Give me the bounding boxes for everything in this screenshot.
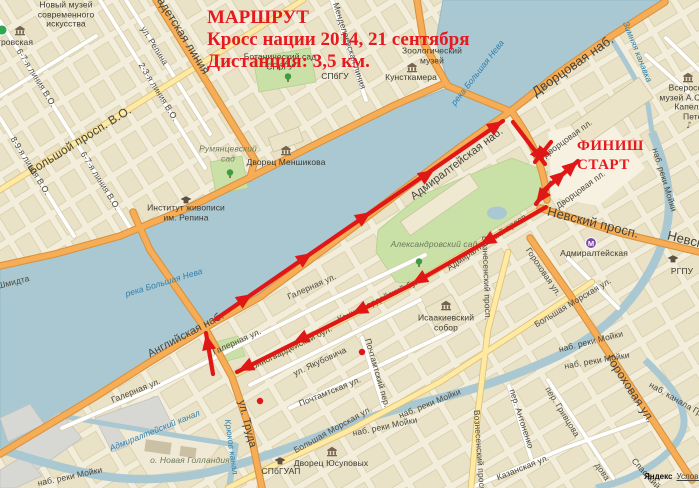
route-title-line2: Кросс нации 2014, 21 сентября [207,29,470,51]
garden-pond [487,207,507,220]
route-title-line3: Дистанция: 3,5 км. [207,51,470,73]
metro-icon [586,238,597,249]
route-title-line1: МАРШРУТ [207,7,470,29]
terms-link[interactable]: Условия [676,472,699,481]
start-label: СТАРТ [577,157,630,174]
base-map: М ♪ [0,0,699,488]
metro-icon-green [0,25,7,35]
route-title: МАРШРУТ Кросс нации 2014, 21 сентября Ди… [207,7,470,73]
attribution: ЯндексУсловия [644,472,699,481]
finish-label: ФИНИШ [577,138,644,155]
map-canvas[interactable]: М ♪ [0,0,699,488]
music-icon [686,121,692,131]
yandex-logo[interactable]: Яндекс [644,472,672,481]
